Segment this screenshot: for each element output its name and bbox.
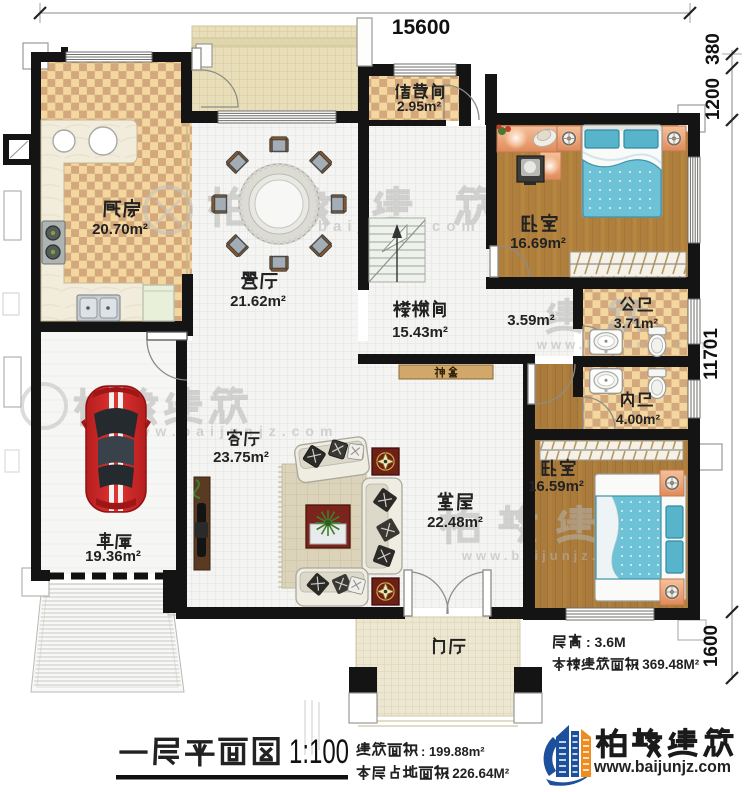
- svg-text:2.95m²: 2.95m²: [397, 98, 442, 114]
- svg-text:3.71m²: 3.71m²: [614, 315, 659, 331]
- svg-text:: 369.48M²: : 369.48M²: [634, 657, 700, 672]
- svg-text:19.36m²: 19.36m²: [85, 548, 141, 565]
- svg-text:15.43m²: 15.43m²: [392, 324, 448, 341]
- svg-text:www.baijunjz.com: www.baijunjz.com: [536, 337, 713, 352]
- svg-text:: 3.6M: : 3.6M: [586, 634, 626, 650]
- svg-text:1:100: 1:100: [289, 733, 349, 771]
- svg-text:www.baijunjz.com: www.baijunjz.com: [593, 757, 731, 776]
- svg-text:22.48m²: 22.48m²: [427, 514, 483, 531]
- svg-text:1600: 1600: [701, 625, 722, 667]
- svg-text:1200: 1200: [703, 78, 724, 120]
- svg-text:www.baijunjz.com: www.baijunjz.com: [121, 423, 339, 439]
- svg-text:11701: 11701: [701, 328, 722, 380]
- svg-text:15600: 15600: [392, 16, 450, 39]
- svg-text:16.59m²: 16.59m²: [528, 478, 584, 495]
- svg-text:4.00m²: 4.00m²: [616, 411, 661, 427]
- svg-text:21.62m²: 21.62m²: [230, 293, 286, 310]
- svg-text:20.70m²: 20.70m²: [92, 221, 148, 238]
- svg-text:3.59m²: 3.59m²: [507, 312, 555, 329]
- svg-text:23.75m²: 23.75m²: [213, 449, 269, 466]
- svg-text:380: 380: [703, 33, 724, 65]
- svg-text:16.69m²: 16.69m²: [510, 235, 566, 252]
- svg-text:: 199.88m²: : 199.88m²: [421, 744, 485, 759]
- svg-text:: 226.64M²: : 226.64M²: [444, 766, 510, 781]
